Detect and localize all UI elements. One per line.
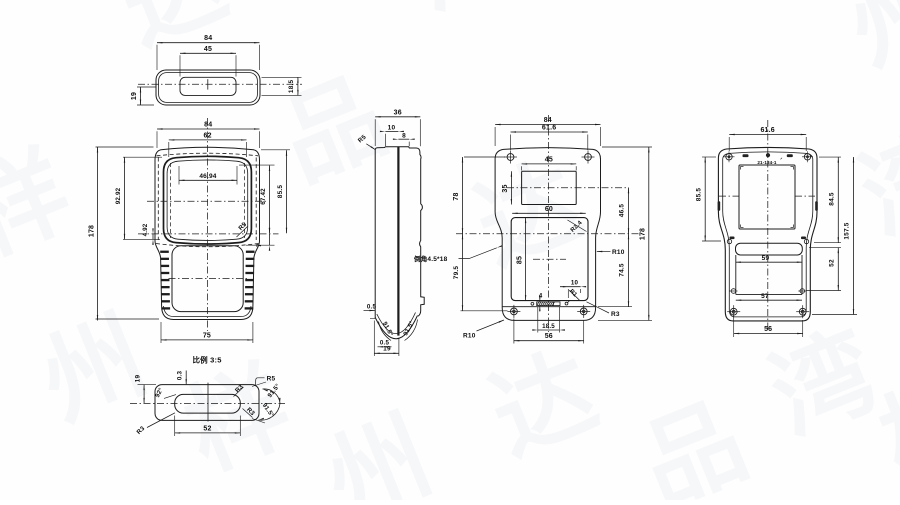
- svg-text:46.5: 46.5: [619, 204, 626, 218]
- svg-text:4.92: 4.92: [142, 223, 149, 236]
- svg-text:8: 8: [402, 132, 406, 139]
- svg-text:178: 178: [88, 225, 95, 237]
- svg-text:10: 10: [571, 280, 579, 287]
- svg-text:19: 19: [383, 346, 391, 353]
- svg-text:46.94: 46.94: [199, 173, 216, 180]
- svg-text:59: 59: [762, 255, 770, 262]
- svg-text:35: 35: [502, 184, 509, 192]
- svg-text:178: 178: [639, 228, 646, 240]
- svg-text:78: 78: [453, 192, 460, 200]
- svg-text:74.5: 74.5: [619, 263, 626, 277]
- svg-text:85.5: 85.5: [277, 185, 284, 199]
- svg-text:52: 52: [203, 426, 211, 433]
- svg-text:84: 84: [204, 35, 212, 42]
- svg-text:45: 45: [204, 46, 212, 53]
- svg-text:比例 3:5: 比例 3:5: [192, 355, 221, 365]
- svg-text:18.5: 18.5: [542, 323, 555, 330]
- svg-text:R5: R5: [267, 375, 276, 382]
- svg-text:0.3: 0.3: [177, 371, 184, 381]
- svg-text:R10: R10: [463, 333, 476, 340]
- svg-text:倒角4.5*18: 倒角4.5*18: [413, 254, 448, 263]
- svg-text:92.92: 92.92: [115, 187, 122, 204]
- svg-text:75: 75: [203, 332, 211, 339]
- svg-text:R10: R10: [612, 249, 625, 256]
- svg-text:0.5: 0.5: [367, 303, 377, 310]
- svg-text:21-134-1: 21-134-1: [757, 160, 777, 165]
- svg-text:157.5: 157.5: [844, 222, 851, 239]
- svg-text:18.5: 18.5: [288, 79, 295, 93]
- svg-text:R3: R3: [611, 311, 620, 318]
- svg-text:67.42: 67.42: [260, 188, 267, 205]
- svg-text:45: 45: [545, 157, 553, 164]
- svg-text:62: 62: [204, 133, 212, 140]
- svg-text:85.5: 85.5: [696, 188, 703, 202]
- svg-text:56: 56: [545, 333, 553, 340]
- svg-text:19: 19: [135, 375, 142, 383]
- svg-text:56: 56: [764, 326, 772, 333]
- svg-text:61.6: 61.6: [542, 125, 556, 132]
- svg-text:36: 36: [394, 109, 402, 116]
- svg-text:79.5: 79.5: [453, 266, 460, 280]
- svg-text:60: 60: [545, 206, 553, 213]
- svg-text:84: 84: [544, 117, 552, 124]
- svg-text:61.6: 61.6: [760, 127, 774, 134]
- svg-text:4: 4: [539, 294, 543, 300]
- svg-text:85: 85: [516, 256, 523, 264]
- svg-text:57: 57: [761, 293, 769, 300]
- svg-text:84.5: 84.5: [829, 192, 836, 206]
- svg-text:84: 84: [204, 122, 212, 129]
- svg-text:19: 19: [131, 92, 138, 100]
- svg-text:10: 10: [388, 125, 396, 132]
- svg-text:52: 52: [829, 259, 836, 267]
